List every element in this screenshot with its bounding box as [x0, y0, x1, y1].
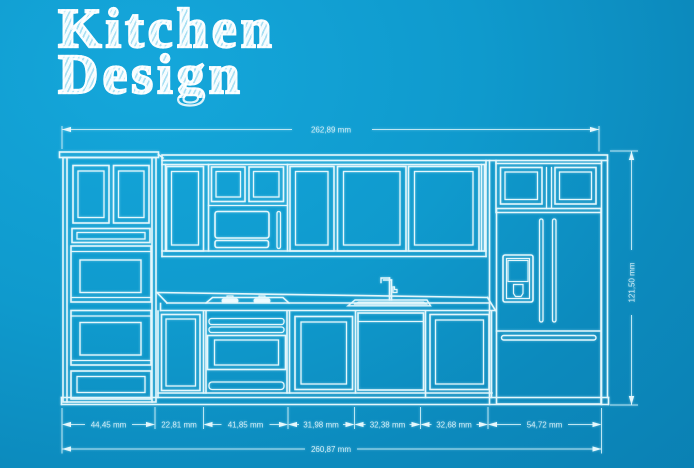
svg-text:22,81 mm: 22,81 mm: [161, 420, 197, 429]
svg-text:262,89 mm: 262,89 mm: [311, 125, 351, 134]
svg-text:121,50 mm: 121,50 mm: [628, 262, 637, 302]
svg-text:260,87 mm: 260,87 mm: [311, 445, 351, 454]
svg-text:32,38 mm: 32,38 mm: [370, 420, 406, 429]
svg-text:31,98 mm: 31,98 mm: [303, 420, 339, 429]
svg-text:54,72 mm: 54,72 mm: [527, 420, 563, 429]
svg-text:41,85 mm: 41,85 mm: [228, 420, 264, 429]
svg-text:44,45 mm: 44,45 mm: [91, 420, 127, 429]
svg-text:32,68 mm: 32,68 mm: [436, 420, 472, 429]
